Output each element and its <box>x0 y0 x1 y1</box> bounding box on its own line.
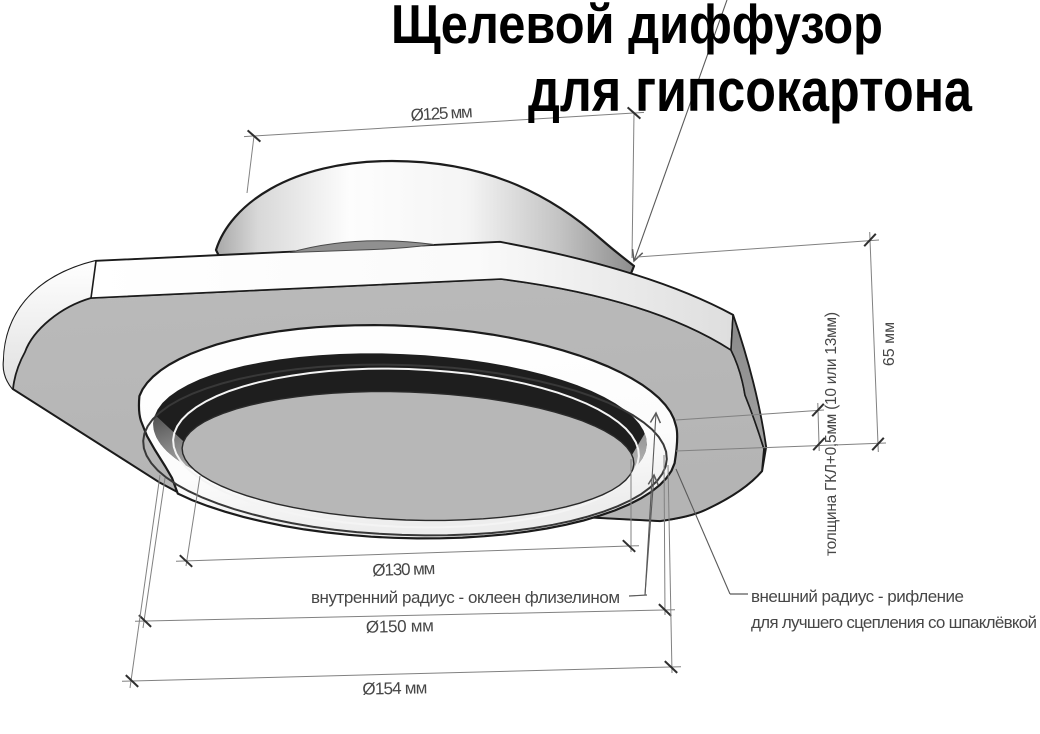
svg-text:Ø125 мм: Ø125 мм <box>410 102 473 125</box>
svg-text:Ø150 мм: Ø150 мм <box>366 616 434 636</box>
svg-text:Ø154 мм: Ø154 мм <box>362 678 427 698</box>
svg-text:Щелевой диффузор: Щелевой диффузор <box>391 0 883 55</box>
svg-text:65 мм: 65 мм <box>881 322 898 366</box>
svg-text:толщина ГКЛ+0,5мм (10 или 13мм: толщина ГКЛ+0,5мм (10 или 13мм) <box>823 312 840 556</box>
svg-text:внутренний радиус - оклеен фли: внутренний радиус - оклеен флизелином <box>311 588 620 607</box>
svg-text:внешний радиус - рифление: внешний радиус - рифление <box>751 587 964 606</box>
svg-text:Ø130 мм: Ø130 мм <box>372 559 436 580</box>
svg-text:для гипсокартона: для гипсокартона <box>528 57 973 124</box>
svg-text:для лучшего сцепления со шпакл: для лучшего сцепления со шпаклёвкой <box>751 613 1037 632</box>
